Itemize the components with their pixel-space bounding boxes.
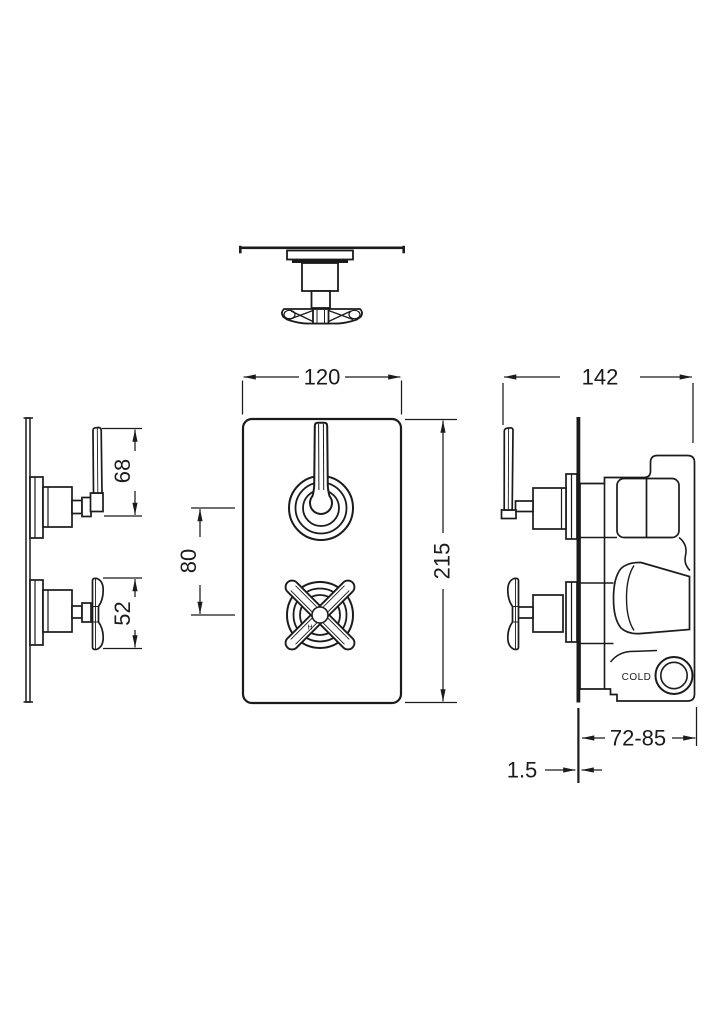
hot-marker: H bbox=[307, 625, 312, 632]
valve-stem-top bbox=[312, 291, 331, 308]
lever-assembly-left bbox=[30, 428, 103, 539]
lever-handle-front bbox=[310, 423, 332, 514]
escutcheon-flange bbox=[30, 477, 43, 538]
dim-plate-thickness: 1.5 bbox=[507, 758, 602, 783]
dim-front-width: 120 bbox=[243, 365, 402, 415]
dim-label-recess-depth: 72-85 bbox=[610, 726, 666, 751]
lever-foot bbox=[91, 493, 104, 512]
valve-body-top bbox=[302, 263, 338, 291]
dim-label-front-width: 120 bbox=[304, 365, 341, 390]
cross-blade bbox=[93, 578, 104, 649]
stem-block bbox=[82, 603, 91, 622]
dim-recess-depth: 72-85 bbox=[582, 707, 696, 751]
handle-top-view bbox=[282, 309, 362, 324]
cross-hub bbox=[312, 607, 328, 623]
cross-assembly-left bbox=[30, 578, 103, 649]
technical-drawing: H 120 215 80 bbox=[0, 0, 724, 1024]
plate-end-tick bbox=[239, 246, 242, 254]
escutcheon-flange bbox=[30, 580, 43, 645]
dim-total-depth: 142 bbox=[503, 365, 693, 444]
lever-assembly-right bbox=[502, 428, 578, 539]
valve-body bbox=[533, 595, 563, 632]
dim-label-lever-depth: 68 bbox=[110, 459, 135, 483]
cross-assembly-right bbox=[508, 578, 577, 649]
dim-label-total-depth: 142 bbox=[582, 365, 619, 390]
dim-front-height: 215 bbox=[405, 420, 457, 703]
cold-label: COLD bbox=[622, 672, 652, 683]
technical-drawing-canvas: H 120 215 80 bbox=[0, 0, 724, 1024]
side-view-right: COLD bbox=[502, 365, 697, 784]
stem bbox=[72, 606, 82, 618]
handle-hub-top bbox=[313, 309, 329, 324]
stem bbox=[516, 501, 534, 512]
dim-label-handle-spacing: 80 bbox=[176, 549, 201, 573]
valve-body bbox=[43, 590, 72, 632]
front-view: H 120 215 80 bbox=[176, 365, 457, 704]
stem bbox=[518, 607, 533, 618]
cross-blade bbox=[508, 578, 519, 649]
side-view-left: 68 52 bbox=[24, 418, 143, 702]
cartridge-housing bbox=[614, 562, 690, 633]
wall-plate-left bbox=[24, 418, 34, 702]
dim-handle-spacing: 80 bbox=[176, 508, 235, 615]
dim-label-cross-depth: 52 bbox=[110, 601, 135, 625]
plate-end-tick bbox=[402, 246, 405, 254]
lever-control-front bbox=[289, 423, 353, 540]
lever-foot bbox=[502, 510, 517, 519]
dim-label-plate-thickness: 1.5 bbox=[507, 758, 538, 783]
upper-manifold bbox=[617, 479, 679, 538]
dim-cross-depth: 52 bbox=[103, 578, 142, 649]
stem bbox=[72, 501, 82, 514]
dim-label-front-height: 215 bbox=[430, 543, 455, 580]
valve-body bbox=[43, 487, 72, 527]
escutcheon-top bbox=[287, 251, 353, 260]
cross-control-front: H bbox=[283, 578, 357, 652]
dim-lever-depth: 68 bbox=[102, 429, 142, 517]
concealed-valve-body: COLD bbox=[580, 456, 695, 702]
top-view bbox=[239, 246, 405, 324]
